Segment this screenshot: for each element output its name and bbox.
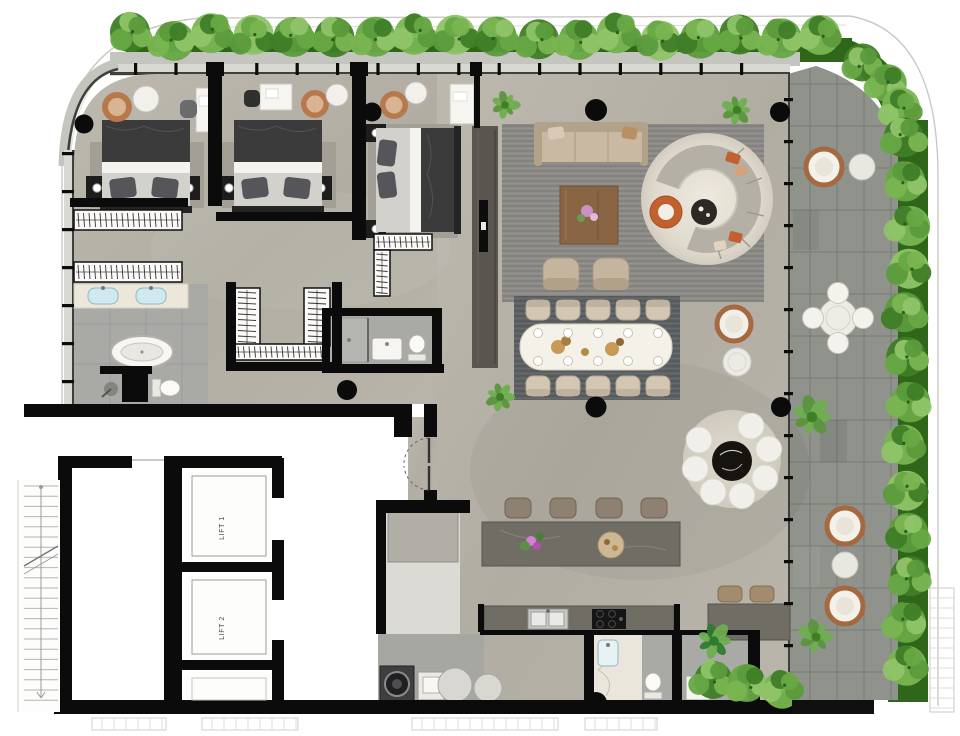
wall	[322, 364, 444, 373]
hedge-sprig	[777, 38, 780, 41]
mullion-tick	[784, 392, 793, 395]
lounge-chair-cushion	[307, 96, 324, 113]
wall	[182, 562, 272, 572]
lounge-chair-cushion	[386, 97, 403, 114]
place-setting	[564, 329, 573, 338]
sink-basin	[549, 612, 564, 626]
chair-back	[646, 389, 670, 396]
chair-back	[526, 300, 550, 307]
wall	[182, 660, 272, 670]
lift-1-shaft	[186, 470, 272, 562]
sofa-pillow	[621, 126, 638, 140]
stair-floor	[20, 480, 60, 712]
round-side-table	[133, 86, 159, 112]
bed-duvet	[421, 128, 456, 232]
bed-duvet	[102, 120, 190, 162]
chair-back	[646, 300, 670, 307]
mullion-tick	[417, 63, 420, 75]
hedge-sprig	[901, 618, 904, 621]
hedge-sprig	[905, 485, 908, 488]
wall	[378, 500, 470, 513]
headboard	[454, 126, 461, 234]
mullion-tick	[255, 63, 258, 75]
terrace-chair	[803, 308, 824, 329]
wall	[272, 540, 284, 600]
flower-decor	[520, 541, 530, 551]
side-table	[723, 348, 751, 376]
chair-back	[616, 389, 640, 396]
hedge-bush	[574, 20, 592, 38]
bathroom-2	[330, 316, 432, 364]
plant-center	[709, 636, 719, 646]
sofa-cushion	[700, 479, 726, 505]
wall	[208, 72, 222, 206]
terrace-dining-table	[819, 299, 857, 337]
bathtub-drain	[140, 350, 143, 353]
hedge-sprig	[170, 38, 173, 41]
centerpiece	[616, 338, 624, 346]
mullion-tick	[62, 228, 74, 231]
pillow	[376, 171, 397, 199]
hedge-sprig	[540, 38, 543, 41]
lamp	[93, 184, 101, 192]
mullion-tick	[296, 63, 299, 75]
bar-stool	[718, 586, 742, 602]
serving-platter	[598, 532, 624, 558]
hedge-sprig	[131, 30, 134, 33]
mullion-tick	[740, 63, 743, 75]
bar-stool	[750, 586, 774, 602]
place-setting	[534, 357, 543, 366]
mullion-tick	[336, 63, 339, 75]
hedge-bush	[818, 20, 836, 38]
bedroom-1	[86, 86, 216, 213]
mullion-tick	[784, 98, 793, 101]
hedge-bush	[904, 339, 922, 357]
place-setting	[654, 357, 663, 366]
wall	[58, 456, 72, 714]
hedge-sprig	[907, 400, 910, 403]
sofa-arm	[534, 122, 542, 166]
toilet-bowl	[409, 335, 425, 353]
partition-wall	[100, 366, 152, 374]
wall	[424, 404, 437, 437]
mullion-tick	[215, 63, 218, 75]
sink	[372, 338, 402, 360]
mullion-tick	[62, 380, 74, 383]
table-decor	[699, 207, 704, 212]
hedge-sprig	[858, 65, 861, 68]
hedge-sprig	[697, 36, 700, 39]
wall	[474, 74, 480, 128]
mullion-tick	[659, 63, 662, 75]
wall	[394, 413, 412, 437]
hedge-bush	[726, 681, 747, 702]
wall	[272, 640, 284, 700]
column	[770, 102, 790, 122]
pillow	[241, 176, 269, 199]
hedge-bush	[904, 648, 922, 666]
powder-room	[594, 634, 672, 700]
chair-back	[586, 389, 610, 396]
hedge-bush	[495, 19, 513, 37]
mullion-tick	[62, 266, 74, 269]
round-side-table	[405, 82, 427, 104]
chair-cushion	[815, 158, 833, 176]
bar-stool	[641, 498, 667, 518]
floor-plan-page: LIFT 1 LIFT 2	[0, 0, 960, 736]
armchair-pillow	[658, 204, 674, 220]
wall	[478, 604, 484, 632]
hedge-bush	[781, 673, 798, 690]
desk-chair	[244, 90, 260, 107]
place-setting	[654, 329, 663, 338]
flower-decor	[536, 532, 544, 540]
hedge-sprig	[783, 684, 786, 687]
water-heater	[474, 674, 502, 702]
shower-drain	[347, 338, 351, 342]
mullion-tick	[134, 63, 137, 75]
hedge-sprig	[902, 311, 905, 314]
round-coffee-table	[712, 441, 752, 481]
platter-food	[604, 539, 610, 545]
wall	[70, 198, 188, 207]
hedge-sprig	[458, 37, 461, 40]
wall-junction	[350, 62, 368, 76]
mullion-tick	[457, 63, 460, 75]
desk	[450, 84, 474, 124]
louver-box	[585, 718, 657, 730]
hedge-bush	[903, 603, 921, 621]
place-setting	[564, 357, 573, 366]
lift-2-shaft	[186, 574, 272, 660]
mullion-tick	[784, 644, 793, 647]
wall	[58, 456, 132, 468]
mullion-tick	[62, 304, 74, 307]
burner-knob	[619, 617, 623, 621]
mullion-tick	[784, 140, 793, 143]
hedge-bush	[332, 19, 350, 37]
terrace-table	[832, 552, 858, 578]
mullion-tick	[62, 342, 74, 345]
bed-sheet-fold	[410, 128, 421, 232]
armchair-back	[593, 278, 629, 290]
hedge-bush	[907, 560, 925, 578]
hedge-bush	[697, 20, 715, 38]
hedge-sprig	[902, 442, 905, 445]
sofa-cushion	[756, 436, 782, 462]
hedge-sprig	[492, 37, 495, 40]
hedge-sprig	[331, 38, 334, 41]
place-setting	[594, 329, 603, 338]
hedge-sprig	[749, 686, 752, 689]
pillow	[283, 176, 311, 199]
lamp	[225, 184, 233, 192]
armchair	[543, 258, 579, 290]
hedge-sprig	[419, 29, 422, 32]
armchair-back	[543, 278, 579, 290]
chair-back	[526, 389, 550, 396]
bar-stool	[596, 498, 622, 518]
lounge-chair-cushion	[108, 98, 126, 116]
hedge-sprig	[289, 34, 292, 37]
hedge-bush	[535, 22, 553, 40]
side-table-dark	[691, 199, 717, 225]
hedge-bush	[778, 21, 796, 39]
mullion-tick	[784, 266, 793, 269]
master-bathroom	[74, 284, 208, 404]
hedge-sprig	[616, 31, 619, 34]
hedge-bush	[414, 17, 432, 35]
sink-basin	[531, 612, 546, 626]
wall	[672, 630, 682, 702]
sofa-pillow	[547, 126, 565, 140]
table-decor	[706, 213, 710, 217]
platter-food	[612, 545, 618, 551]
wall	[226, 282, 236, 370]
plant-center	[733, 106, 742, 115]
sofa-cushion	[752, 465, 778, 491]
water-heater	[438, 668, 472, 702]
kitchen-counter	[484, 606, 674, 632]
hedge-bush	[904, 515, 922, 533]
headboard	[232, 206, 324, 213]
sofa-cushion	[682, 456, 708, 482]
plant-center	[812, 633, 821, 642]
place-setting	[624, 357, 633, 366]
wall	[164, 456, 282, 468]
bed-sheet-fold	[102, 162, 190, 173]
toilet-bowl	[160, 380, 180, 396]
wall-junction	[470, 62, 482, 76]
bar-stool	[505, 498, 531, 518]
hedge-sprig	[579, 41, 582, 44]
mullion-tick	[784, 308, 793, 311]
flower-decor	[577, 214, 585, 222]
hedge-sprig	[661, 40, 664, 43]
toilet-tank	[408, 354, 426, 361]
staircase	[18, 480, 60, 712]
mullion-tick	[62, 152, 74, 155]
mullion-tick	[538, 63, 541, 75]
barrel-chair-cushion	[725, 315, 743, 333]
hedge-bush	[907, 251, 925, 269]
sofa-cushion	[729, 483, 755, 509]
tv-detail	[481, 222, 486, 230]
mullion-tick	[578, 63, 581, 75]
mullion-tick	[62, 190, 74, 193]
terrace-table	[849, 154, 875, 180]
hedge-bush	[746, 667, 763, 684]
column	[75, 115, 94, 134]
mullion-tick	[498, 63, 501, 75]
mullion-tick	[619, 63, 622, 75]
chair-cushion	[836, 517, 854, 535]
mullion-tick	[784, 602, 793, 605]
railing	[930, 588, 954, 712]
mullion-tick	[784, 560, 793, 563]
hedge-sprig	[739, 36, 742, 39]
wall	[432, 316, 442, 368]
faucet	[385, 342, 389, 346]
sink	[136, 288, 166, 304]
hedge-bush	[249, 20, 267, 38]
wall	[674, 604, 680, 632]
hedge-sprig	[910, 268, 913, 271]
chair-cushion	[836, 597, 854, 615]
round-side-table	[326, 84, 348, 106]
column	[585, 99, 607, 121]
living-room	[502, 122, 773, 302]
hedge-sprig	[374, 38, 377, 41]
sink	[88, 288, 118, 304]
toilet-tank	[644, 692, 662, 699]
chair-back	[616, 300, 640, 307]
hedge-sprig	[903, 222, 906, 225]
hedge-sprig	[902, 107, 905, 110]
hedge-sprig	[905, 577, 908, 580]
bar-stool	[550, 498, 576, 518]
plant-center	[807, 412, 818, 423]
partition-wall	[122, 374, 148, 402]
mullion-tick	[700, 63, 703, 75]
hedge-bush	[860, 48, 877, 65]
planter-box	[792, 700, 874, 714]
terrace-chair	[828, 283, 849, 304]
pillow	[376, 139, 397, 167]
wall	[322, 316, 330, 368]
armchair	[593, 258, 629, 290]
column	[771, 397, 791, 417]
paver-shade	[793, 546, 820, 588]
mullion-tick	[784, 476, 793, 479]
wall	[272, 458, 284, 498]
desk-papers	[453, 92, 467, 101]
terrace-chair	[828, 333, 849, 354]
wall	[24, 404, 412, 417]
flower-decor	[590, 213, 598, 221]
hedge-bush	[710, 662, 727, 679]
wall	[322, 308, 442, 316]
hedge-sprig	[901, 181, 904, 184]
pillow	[109, 176, 137, 199]
hedge-bush	[374, 19, 392, 37]
hedge-bush	[902, 430, 920, 448]
lift-2-label: LIFT 2	[219, 616, 226, 640]
hedge-bush	[900, 119, 918, 137]
wall	[164, 456, 182, 714]
hedge-bush	[903, 472, 921, 490]
hedge-sprig	[899, 133, 902, 136]
hedge-bush	[906, 383, 924, 401]
place-setting	[624, 329, 633, 338]
louver-box	[92, 718, 166, 730]
terrace-chair	[853, 308, 874, 329]
column	[586, 397, 607, 418]
paver-shade	[793, 210, 819, 250]
mullion-tick	[784, 224, 793, 227]
hedge-sprig	[886, 81, 889, 84]
hedge-bush	[452, 18, 470, 36]
hedge-sprig	[713, 680, 716, 683]
hedge-sprig	[253, 33, 256, 36]
stair-start	[39, 485, 43, 489]
mullion-tick	[784, 182, 793, 185]
place-setting	[534, 329, 543, 338]
washer-drum-center	[392, 679, 402, 689]
hedge-bush	[897, 93, 914, 110]
pillow	[151, 176, 179, 199]
hedge-bush	[290, 17, 308, 35]
plant-center	[496, 393, 504, 401]
bed-duvet	[234, 120, 322, 162]
hedge-bush	[617, 15, 635, 33]
column	[337, 380, 357, 400]
mullion-tick	[784, 350, 793, 353]
wall	[332, 282, 342, 370]
desk-chair	[180, 100, 197, 118]
lift-1-label: LIFT 1	[219, 516, 226, 540]
hedge-bush	[902, 163, 920, 181]
hedge-bush	[736, 17, 754, 35]
hedge-sprig	[904, 530, 907, 533]
chair-back	[556, 389, 580, 396]
sofa-cushion	[738, 413, 764, 439]
hedge-sprig	[822, 35, 825, 38]
desk-papers	[266, 89, 278, 98]
chair-back	[586, 300, 610, 307]
faucet	[101, 286, 105, 290]
hedge-bush	[110, 28, 132, 50]
hedge-sprig	[907, 666, 910, 669]
sofa-cushion	[686, 427, 712, 453]
place-setting	[594, 357, 603, 366]
centerpiece	[581, 348, 589, 356]
mullion-tick	[174, 63, 177, 75]
column	[363, 103, 382, 122]
column	[585, 692, 607, 714]
kitchen-island	[482, 522, 680, 566]
plant-center	[501, 101, 509, 109]
hedge-sprig	[211, 28, 214, 31]
chair-back	[556, 300, 580, 307]
hedge-bush	[906, 209, 924, 227]
floor-plan-drawing: LIFT 1 LIFT 2	[0, 0, 960, 736]
mullion-tick	[376, 63, 379, 75]
wall	[376, 500, 386, 634]
mullion-tick	[784, 434, 793, 437]
lift-3-shaft	[186, 672, 272, 700]
mullion-tick	[784, 518, 793, 521]
hedge-bush	[903, 297, 921, 315]
tv-wall	[472, 126, 498, 368]
faucet	[149, 286, 153, 290]
hedge-bush	[169, 23, 187, 41]
bed-sheet-fold	[234, 162, 322, 173]
wall	[584, 630, 594, 702]
laundry-sink-basin	[423, 677, 439, 693]
hedge-sprig	[905, 355, 908, 358]
faucet	[606, 643, 610, 647]
flower-decor	[533, 542, 541, 550]
hedge-bush	[655, 23, 673, 41]
faucet	[546, 609, 550, 613]
wall	[216, 212, 356, 221]
toilet-bowl	[645, 673, 661, 691]
